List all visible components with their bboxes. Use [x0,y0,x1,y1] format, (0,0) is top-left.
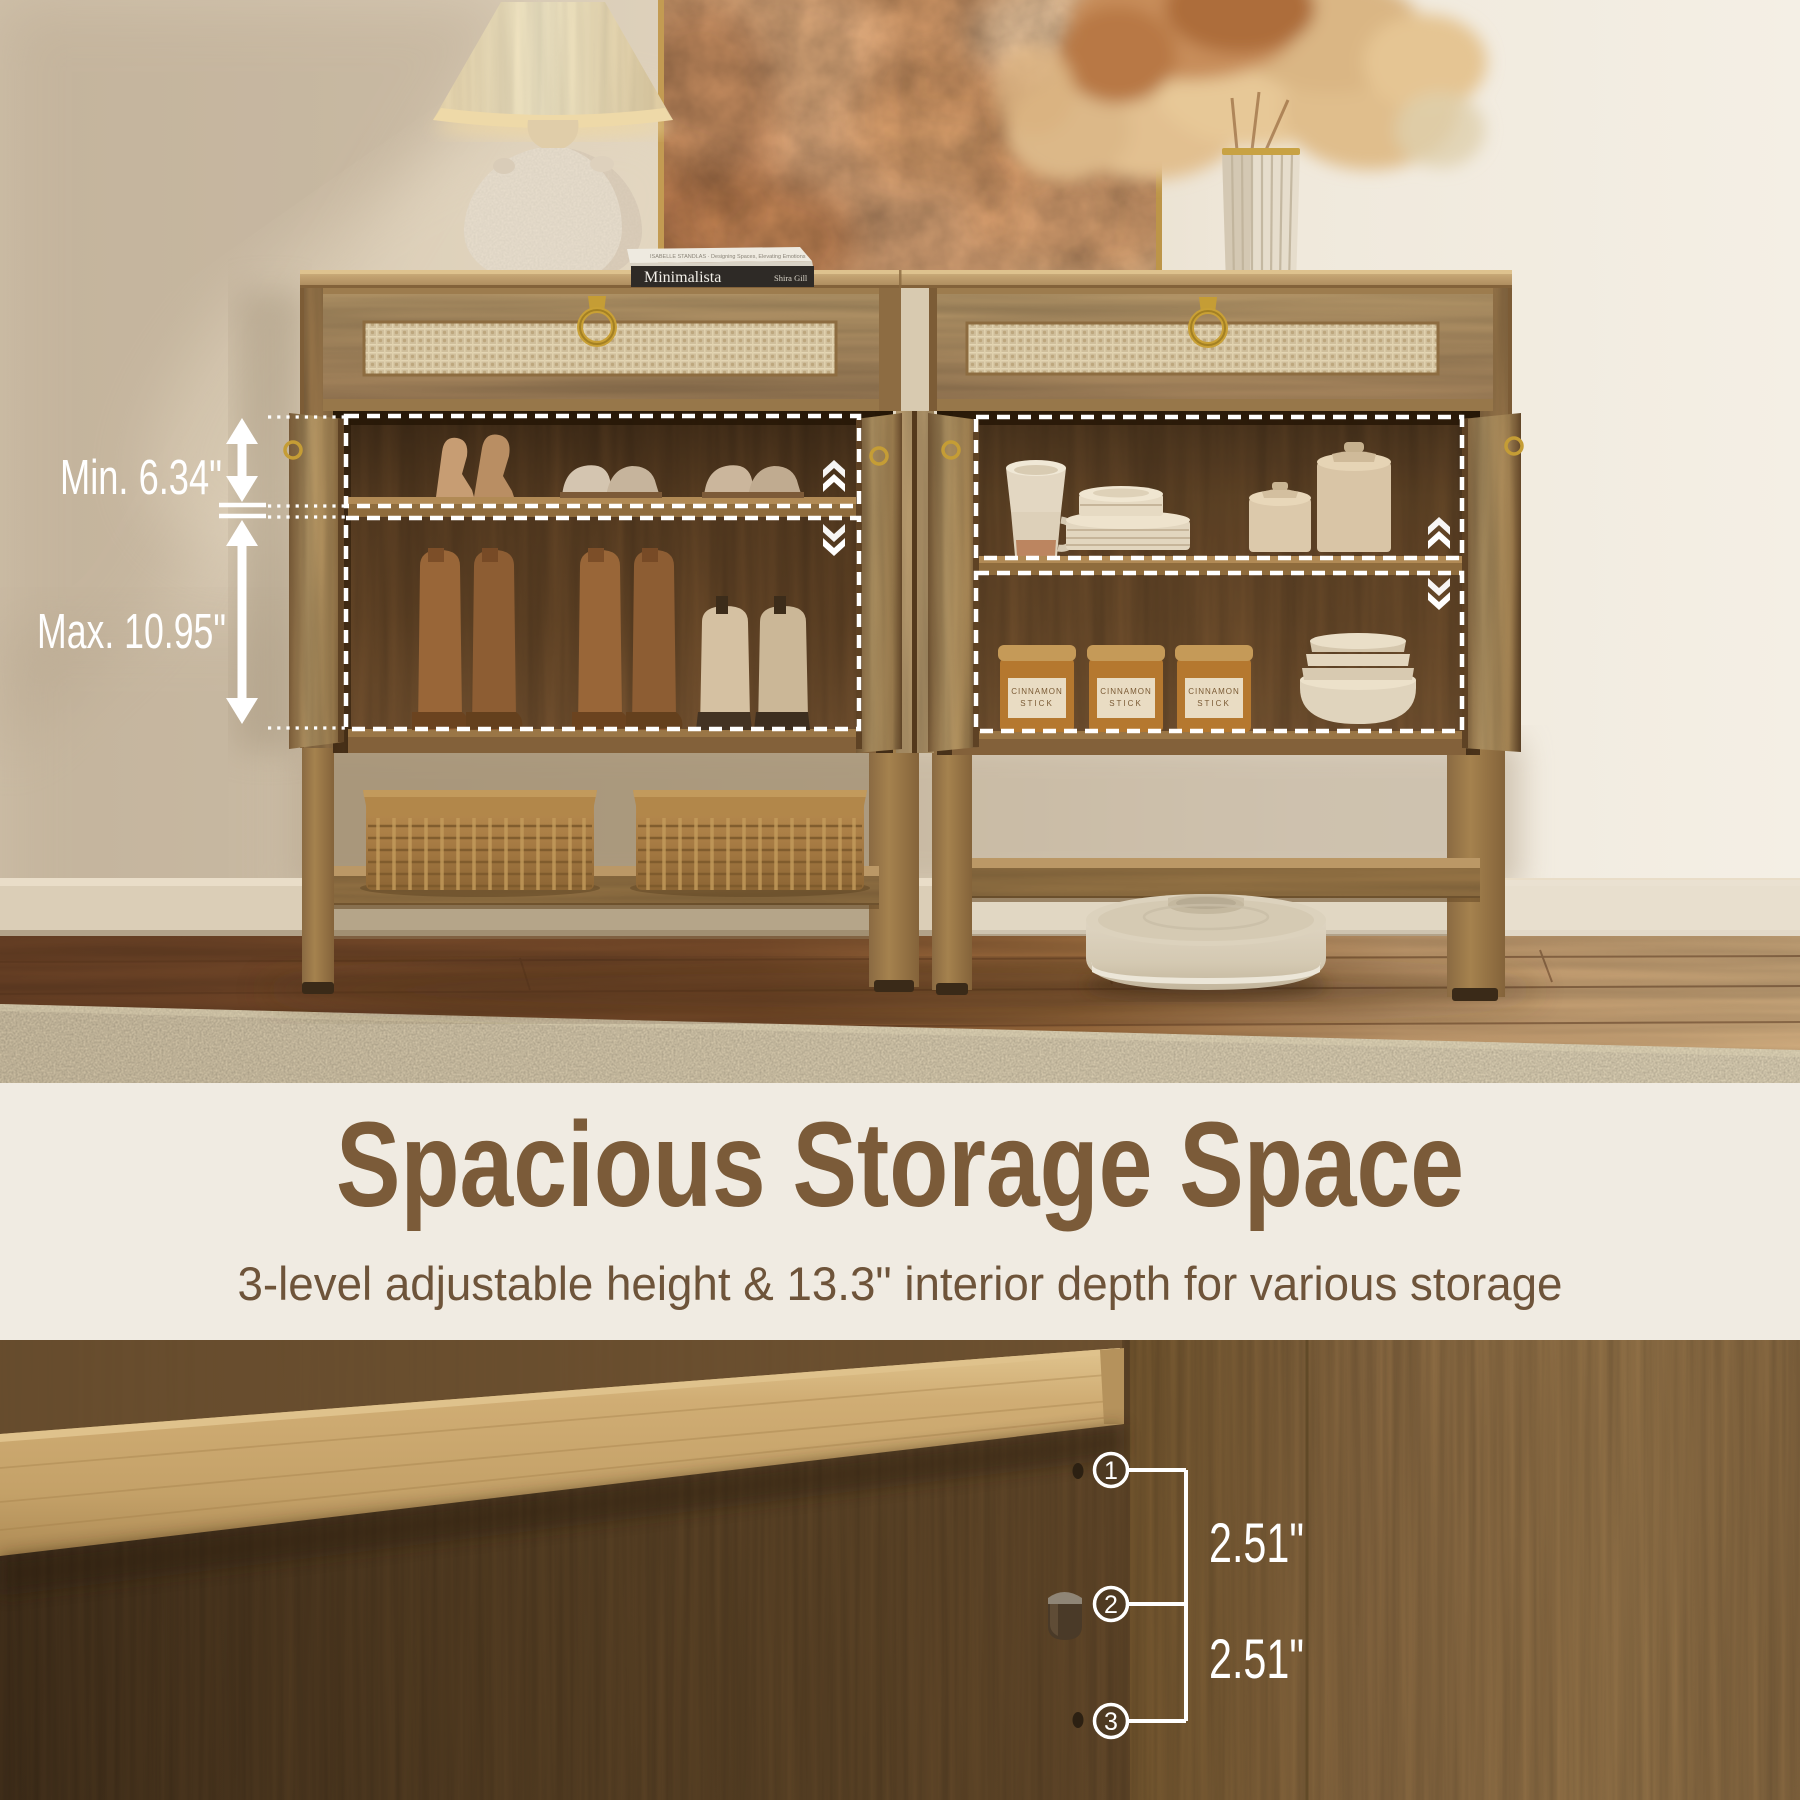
svg-text:Min. 6.34": Min. 6.34" [60,451,222,505]
svg-text:2.51": 2.51" [1209,1627,1304,1690]
svg-text:STICK: STICK [1197,699,1231,708]
svg-text:CINNAMON: CINNAMON [1011,687,1063,696]
svg-text:Max. 10.95": Max. 10.95" [37,605,226,659]
svg-text:Spacious Storage Space: Spacious Storage Space [336,1096,1464,1232]
svg-text:ISABELLE STANDLAS · Designing: ISABELLE STANDLAS · Designing Spaces, El… [650,254,806,260]
svg-text:1: 1 [1104,1457,1118,1485]
svg-text:STICK: STICK [1020,699,1054,708]
svg-text:3: 3 [1104,1708,1118,1736]
svg-text:Shira Gill: Shira Gill [774,273,808,283]
svg-text:3-level adjustable height & 13: 3-level adjustable height & 13.3" interi… [238,1257,1563,1310]
svg-text:Minimalista: Minimalista [644,269,721,286]
svg-text:2: 2 [1104,1591,1118,1619]
svg-text:STICK: STICK [1109,699,1143,708]
svg-text:CINNAMON: CINNAMON [1100,687,1152,696]
svg-text:CINNAMON: CINNAMON [1188,687,1240,696]
svg-text:2.51": 2.51" [1209,1511,1304,1574]
